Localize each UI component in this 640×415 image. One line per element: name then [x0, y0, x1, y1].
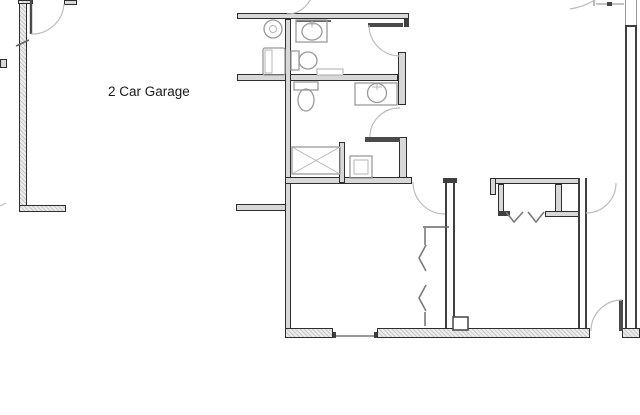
wall-bedroom-divider [445, 178, 455, 330]
door-jamb-top-left [64, 0, 77, 5]
wall-tr-closet-foot [498, 211, 510, 216]
wall-garage-left [19, 0, 27, 212]
wall-top-end-return [404, 19, 409, 27]
lower-bath-door-icon [365, 108, 400, 142]
top-edge-door-icon [287, 0, 313, 14]
wall-garage-top-corner [18, 0, 33, 4]
wall-garage-bottom [19, 205, 66, 212]
wall-utility-divider [339, 142, 345, 183]
floor-plan: 2 Car Garage [0, 0, 640, 415]
shower-xbox-icon [292, 147, 340, 174]
window-post-left [333, 332, 336, 338]
lower-toilet-icon [294, 82, 318, 111]
top-right-door-fragment [570, 0, 624, 9]
washer-icon [263, 48, 285, 75]
horizontal-bifold-closet-icon [506, 212, 544, 222]
water-heater-icon [264, 20, 282, 38]
wall-main-vertical [285, 19, 291, 330]
wall-left-edge-stub [0, 59, 7, 68]
utility-square-icon [350, 156, 372, 178]
wall-bottom-c [622, 328, 640, 338]
window-right-top [625, 0, 637, 27]
wall-bath-divider [237, 74, 398, 81]
garage-entry-door-icon [31, 0, 64, 34]
wall-right-exterior [625, 27, 637, 332]
wall-tr-closet-left-return [490, 178, 496, 195]
bedroom1-door-icon [413, 182, 445, 214]
garage-label: 2 Car Garage [108, 84, 190, 99]
wall-top [237, 13, 409, 19]
wall-bottom-b [377, 328, 590, 338]
rear-exterior-door-icon [591, 300, 623, 331]
upper-toilet-icon [291, 51, 317, 70]
left-edge-arc-fragment [0, 203, 6, 206]
wall-closet-row-bottom [285, 177, 412, 184]
upper-vanity-sink-icon [296, 20, 331, 42]
lower-vanity-sink-icon [355, 83, 397, 105]
wall-bedroom-divider-cap [443, 178, 457, 183]
right-room-door-icon [586, 183, 616, 213]
wall-bottom-a [285, 328, 333, 338]
plan-overlay [0, 0, 640, 415]
wall-tr-closet-mid [555, 184, 562, 212]
wall-right-room-divider [578, 178, 587, 330]
wall-hall-stub [236, 204, 291, 211]
wall-right-upper [398, 52, 406, 105]
